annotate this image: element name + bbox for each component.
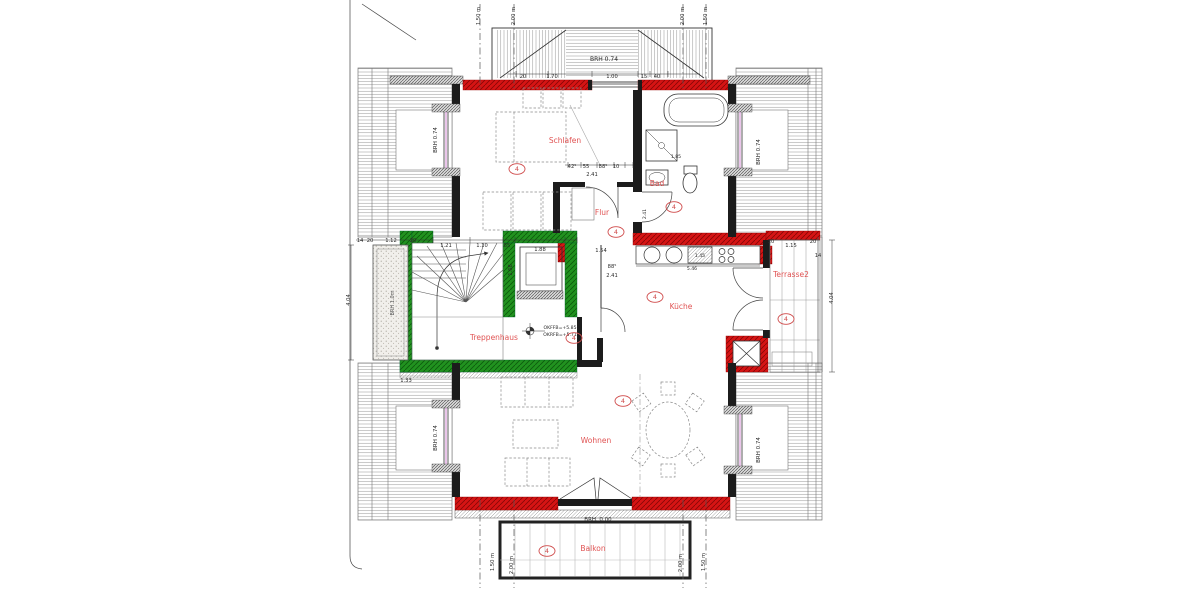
room-label-wohnen: Wohnen xyxy=(581,436,612,445)
dimension-label: 1.10 xyxy=(476,243,488,249)
dimension-label: 20 xyxy=(768,239,775,245)
room-label-flur: Flur xyxy=(595,208,610,217)
dimension-label: 55 xyxy=(583,164,590,170)
dimension-label: 88⁵ xyxy=(608,264,617,270)
room-label-balkon: Balkon xyxy=(580,544,605,553)
dimension-label: 1.50 m xyxy=(703,7,709,25)
dimension-label: BRH 0.74 xyxy=(756,139,762,165)
dimension-label: OKFFB=+5.85 xyxy=(544,325,577,331)
floorplan-canvas: 201.701.001540BRH 0.74BRH 0.74BRH 0.74BR… xyxy=(0,0,1200,600)
dimension-label: 20 xyxy=(810,239,817,245)
dimension-label: 1.12 xyxy=(385,238,397,244)
dimension-label: 88⁵ xyxy=(599,164,608,170)
marker-number: 4 xyxy=(614,228,618,236)
dimension-label: 1.85 xyxy=(671,154,681,160)
marker-number: 4 xyxy=(672,203,676,211)
dimension-label: 2.41 xyxy=(606,273,618,279)
dimension-label: 2.41 xyxy=(642,209,648,219)
marker-number: 4 xyxy=(784,315,788,323)
room-label-bad: Bad xyxy=(650,179,665,188)
dimension-label: BRH 0.74 xyxy=(433,425,439,451)
dimension-label: 14 xyxy=(357,238,364,244)
dimension-label: BRH 1.0m xyxy=(390,290,396,315)
marker-number: 4 xyxy=(572,334,576,342)
dimension-label: 1.50 m xyxy=(476,7,482,25)
marker-number: 4 xyxy=(653,293,657,301)
dimension-label: BRH 0.74 xyxy=(433,127,439,153)
dimension-label: 15 xyxy=(641,74,648,80)
dimension-label: BRH. 0.00 xyxy=(584,517,612,523)
dimension-label: 1.21 xyxy=(440,243,452,249)
room-label-schlafen: Schlafen xyxy=(549,136,582,145)
labels-overlay: 201.701.001540BRH 0.74BRH 0.74BRH 0.74BR… xyxy=(0,0,1200,600)
dimension-label: 20 xyxy=(367,238,374,244)
dimension-label: 1.54 xyxy=(595,248,607,254)
room-label-kueche: Küche xyxy=(670,302,693,311)
dimension-label: 20 xyxy=(410,238,417,244)
dimension-label: 2.00 m xyxy=(509,556,515,574)
dimension-label: 2.00 m xyxy=(680,7,686,25)
marker-number: 4 xyxy=(621,397,625,405)
dimension-label: 4.04 xyxy=(346,294,352,306)
dimension-label: 40 xyxy=(654,74,661,80)
dimension-label: 1.15 xyxy=(785,243,797,249)
room-label-terrasse2: Terrasse2 xyxy=(772,270,809,279)
dimension-label: 1.50 m xyxy=(490,553,496,571)
dimension-label: 2.00 m xyxy=(511,7,517,25)
dimension-label: 42⁵ xyxy=(568,164,577,170)
dimension-label: BRH 0.74 xyxy=(756,437,762,463)
dimension-label: 10 xyxy=(613,164,620,170)
dimension-label: 1.00 xyxy=(606,74,618,80)
marker-number: 4 xyxy=(545,547,549,555)
dimension-label: 1.45 xyxy=(695,253,705,259)
dimension-label: BRH 0.74 xyxy=(590,56,618,63)
dimension-label: 1.33 xyxy=(400,378,412,384)
dimension-label: 1.50 m xyxy=(701,553,707,571)
dimension-label: 1.68 xyxy=(508,264,514,276)
dimension-label: 14 xyxy=(815,253,822,259)
room-label-treppenhaus: Treppenhaus xyxy=(469,333,518,342)
marker-number: 4 xyxy=(515,165,519,173)
dimension-label: 20 xyxy=(520,74,527,80)
dimension-label: 4.04 xyxy=(829,292,835,304)
dimension-label: 1.70 xyxy=(546,74,558,80)
dimension-label: 55 xyxy=(504,243,511,249)
dimension-label: 1.88 xyxy=(534,247,546,253)
dimension-label: 2.00 m xyxy=(678,554,684,572)
dimension-label: 2.41 xyxy=(586,172,598,178)
dimension-label: 5.46 xyxy=(687,266,697,272)
